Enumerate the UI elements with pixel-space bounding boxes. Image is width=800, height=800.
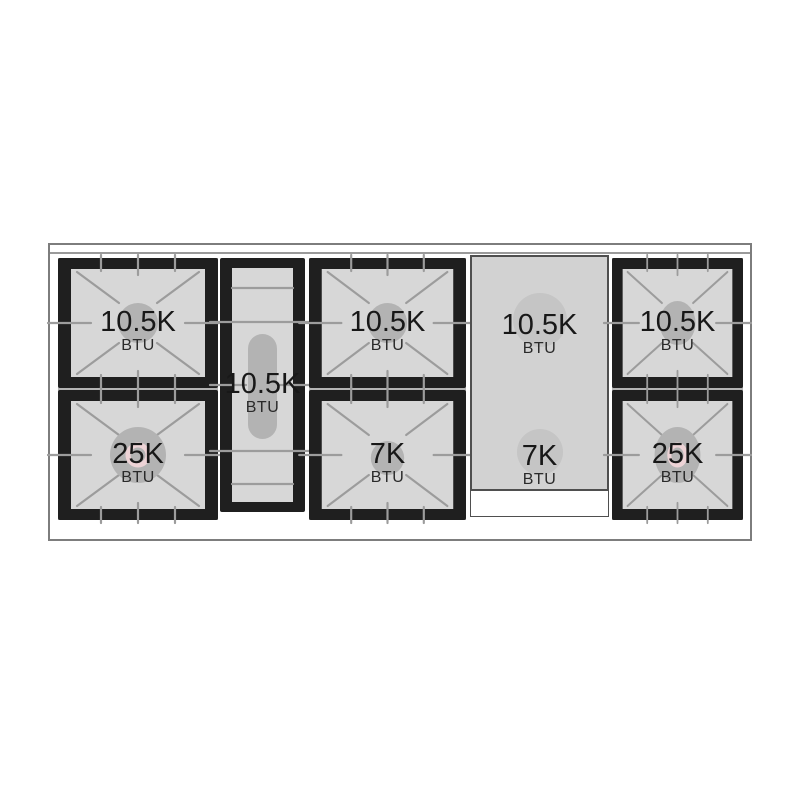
burner-head — [655, 427, 701, 483]
burner-head — [659, 301, 695, 345]
burner-grate-graphic — [309, 390, 466, 520]
burner-grate-graphic — [612, 258, 743, 388]
burner-left-rear: 10.5K BTU — [58, 258, 218, 388]
oval-burner-head — [248, 334, 277, 439]
burner-section-right: 10.5K BTU — [612, 258, 743, 520]
btu-unit: BTU — [523, 341, 557, 357]
burner-rating-label: 7K BTU — [472, 441, 607, 488]
burner-middle-front: 7K BTU — [309, 390, 466, 520]
burner-section-center-oval: 10.5K BTU — [220, 258, 305, 512]
btu-value: 10.5K — [502, 310, 578, 340]
burner-center-oval: 10.5K BTU — [220, 258, 305, 512]
cooktop-back-edge — [50, 245, 750, 254]
btu-value: 7K — [522, 441, 557, 471]
burner-section-left: 10.5K BTU — [58, 258, 218, 520]
burner-rating-label: 10.5K BTU — [472, 310, 607, 357]
burner-head — [110, 427, 166, 483]
burner-grate-graphic — [612, 390, 743, 520]
burner-grate-graphic — [58, 390, 218, 520]
griddle-plate: 10.5K BTU 7K BTU — [470, 255, 609, 517]
burner-grate-graphic — [58, 258, 218, 388]
burner-section-middle: 10.5K BTU — [309, 258, 466, 520]
oval-burner-grate-graphic — [220, 258, 305, 512]
burner-right-front: 25K BTU — [612, 390, 743, 520]
burner-head — [368, 303, 407, 343]
burner-head — [371, 441, 404, 475]
btu-unit: BTU — [523, 472, 557, 488]
burner-grate-graphic — [309, 258, 466, 388]
cooktop-diagram: 10.5K BTU — [48, 243, 752, 541]
griddle-grease-tray — [471, 489, 608, 516]
burner-left-front: 25K BTU — [58, 390, 218, 520]
burner-right-rear: 10.5K BTU — [612, 258, 743, 388]
product-image: 10.5K BTU — [0, 0, 800, 800]
burner-head — [118, 303, 158, 343]
burner-middle-rear: 10.5K BTU — [309, 258, 466, 388]
